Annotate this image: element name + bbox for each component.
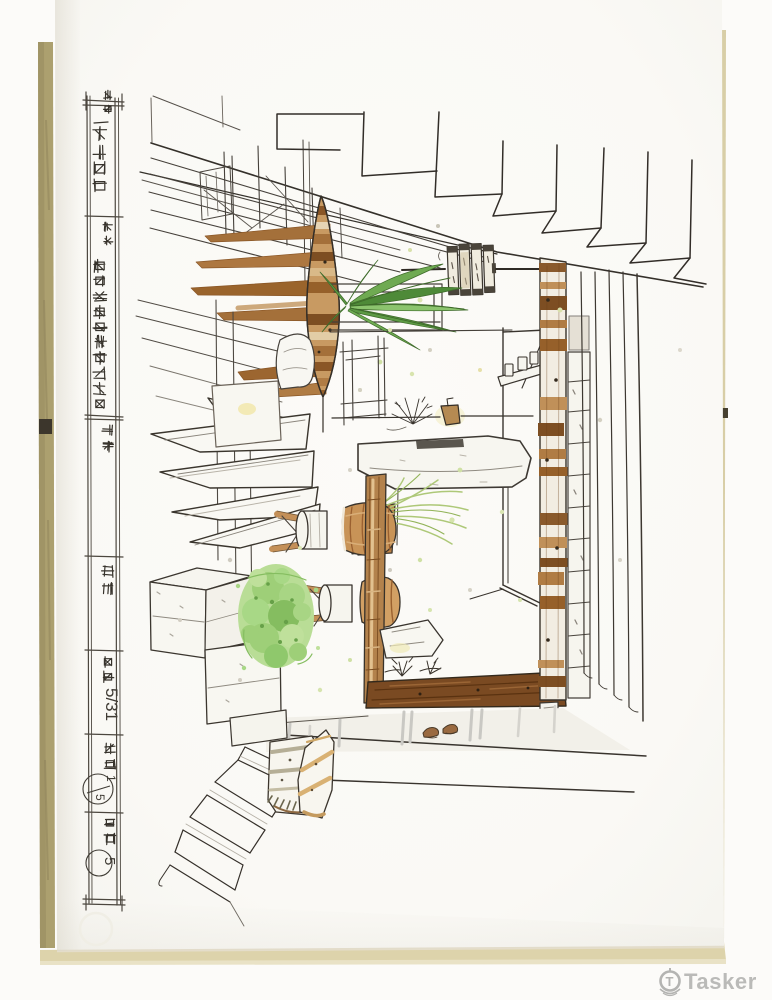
svg-text:Tasker: Tasker: [684, 969, 757, 994]
svg-text:5: 5: [93, 794, 107, 801]
svg-text:T: T: [666, 974, 674, 989]
svg-text:5: 5: [101, 857, 118, 865]
svg-text:5/31: 5/31: [102, 688, 121, 721]
svg-text:1: 1: [104, 775, 118, 782]
